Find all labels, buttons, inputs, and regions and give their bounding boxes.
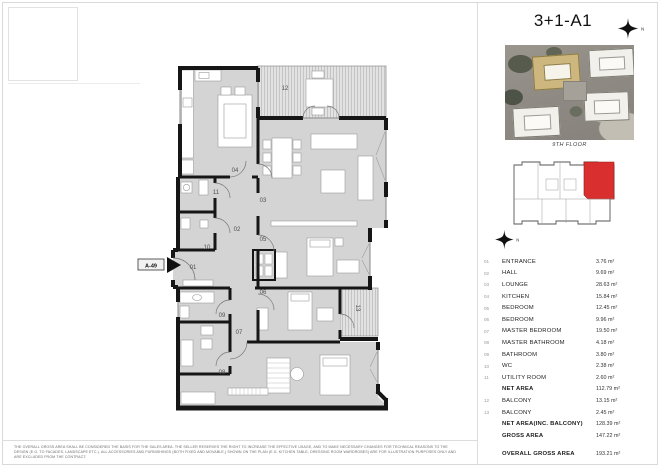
row-value: 28.63 m² (596, 282, 656, 288)
row-number: 01 (484, 259, 502, 264)
room-label-01: 01 (190, 265, 197, 271)
row-value: 2.60 m² (596, 375, 656, 381)
room-label-03: 03 (260, 198, 267, 204)
table-row: 03 LOUNGE 28.63 m² (484, 279, 656, 291)
table-row: 11 UTILITY ROOM 2.60 m² (484, 372, 656, 384)
row-value: 9.96 m² (596, 317, 656, 323)
site-aerial-photo (505, 45, 634, 140)
room-label-06: 06 (260, 290, 267, 296)
room-label-09: 09 (219, 313, 226, 319)
row-value: 193.21 m² (596, 451, 656, 457)
table-row: 12 BALCONY 13.15 m² (484, 395, 656, 407)
row-value: 12.45 m² (596, 305, 656, 311)
room-label-07: 07 (236, 330, 243, 336)
closet-05 (253, 250, 275, 280)
room-label-10: 10 (204, 245, 211, 251)
area-table: 01 ENTRANCE 3.76 m² 02 HALL 9.69 m² 03 L… (484, 256, 656, 460)
floor-label: 9TH FLOOR (505, 142, 634, 148)
row-number: 05 (484, 306, 502, 311)
table-row: 06 BEDROOM 9.96 m² (484, 314, 656, 326)
row-number: 04 (484, 294, 502, 299)
row-label: LOUNGE (502, 282, 596, 288)
room-label-11: 11 (213, 190, 220, 196)
floor-plan-drawing: 01 02 03 04 05 06 07 08 09 10 11 12 13 A… (125, 52, 395, 430)
table-row: OVERALL GROSS AREA 193.21 m² (484, 449, 656, 461)
row-number: 12 (484, 398, 502, 403)
row-number: 03 (484, 282, 502, 287)
row-label: BEDROOM (502, 305, 596, 311)
row-label: MASTER BEDROOM (502, 328, 596, 334)
row-value: 4.18 m² (596, 340, 656, 346)
table-row: 04 KITCHEN 15.84 m² (484, 291, 656, 303)
row-value: 19.50 m² (596, 328, 656, 334)
key-plan (508, 157, 624, 231)
room-label-05: 05 (260, 237, 267, 243)
row-label: BATHROOM (502, 352, 596, 358)
row-value: 13.15 m² (596, 398, 656, 404)
keyplan-unit-highlight (584, 162, 614, 199)
table-row: 10 WC 2.38 m² (484, 360, 656, 372)
row-number: 02 (484, 271, 502, 276)
site-building-small (563, 81, 587, 101)
room-label-04: 04 (232, 168, 239, 174)
table-row: 01 ENTRANCE 3.76 m² (484, 256, 656, 268)
disclaimer-text: THE OVERALL GROSS AREA SHALL BE CONSIDER… (14, 445, 461, 460)
disclaimer-strip: THE OVERALL GROSS AREA SHALL BE CONSIDER… (2, 440, 477, 466)
row-value: 112.79 m² (596, 386, 656, 392)
north-label: N (516, 237, 519, 242)
row-label: OVERALL GROSS AREA (502, 451, 596, 457)
table-row: 07 MASTER BEDROOM 19.50 m² (484, 326, 656, 338)
room-label-12: 12 (282, 86, 289, 92)
row-label: NET AREA(INC. BALCONY) (502, 421, 596, 427)
site-building (584, 91, 630, 122)
site-building (588, 48, 634, 78)
row-label: NET AREA (502, 386, 596, 392)
row-value: 2.38 m² (596, 363, 656, 369)
row-label: BEDROOM (502, 317, 596, 323)
table-row: NET AREA(INC. BALCONY) 128.39 m² (484, 418, 656, 430)
table-row: 13 BALCONY 2.45 m² (484, 407, 656, 419)
panel-divider (477, 2, 478, 465)
compass-icon: N (494, 229, 522, 251)
row-number: 06 (484, 317, 502, 322)
row-number: 10 (484, 364, 502, 369)
row-value: 147.22 m² (596, 433, 656, 439)
site-building (512, 106, 561, 138)
north-label: N (641, 27, 644, 32)
row-number: 13 (484, 410, 502, 415)
row-label: BALCONY (502, 398, 596, 404)
room-label-13: 13 (354, 305, 360, 312)
row-number: 09 (484, 352, 502, 357)
row-label: UTILITY ROOM (502, 375, 596, 381)
row-label: BALCONY (502, 410, 596, 416)
table-row: 05 BEDROOM 12.45 m² (484, 302, 656, 314)
room-label-08: 08 (219, 370, 226, 376)
unit-tag-label: A-49 (145, 264, 157, 270)
row-value: 15.84 m² (596, 294, 656, 300)
title-block-line (8, 83, 140, 84)
balcony-13-area (340, 288, 378, 336)
row-value: 3.76 m² (596, 259, 656, 265)
table-row: GROSS AREA 147.22 m² (484, 430, 656, 442)
floorplan-sheet: 01 02 03 04 05 06 07 08 09 10 11 12 13 A… (0, 0, 660, 467)
row-label: HALL (502, 270, 596, 276)
row-number: 07 (484, 329, 502, 334)
row-label: KITCHEN (502, 294, 596, 300)
row-label: ENTRANCE (502, 259, 596, 265)
row-number: 08 (484, 340, 502, 345)
table-row: 02 HALL 9.69 m² (484, 268, 656, 280)
row-value: 3.80 m² (596, 352, 656, 358)
logo-placeholder-box (8, 7, 78, 81)
table-row: 09 BATHROOM 3.80 m² (484, 349, 656, 361)
row-number: 11 (484, 375, 502, 380)
compass-icon: N (617, 17, 647, 41)
table-row: 08 MASTER BATHROOM 4.18 m² (484, 337, 656, 349)
room-label-02: 02 (234, 227, 241, 233)
row-label: WC (502, 363, 596, 369)
row-value: 9.69 m² (596, 270, 656, 276)
row-value: 128.39 m² (596, 421, 656, 427)
row-label: MASTER BATHROOM (502, 340, 596, 346)
row-value: 2.45 m² (596, 410, 656, 416)
row-label: GROSS AREA (502, 433, 596, 439)
table-row: NET AREA 112.79 m² (484, 384, 656, 396)
